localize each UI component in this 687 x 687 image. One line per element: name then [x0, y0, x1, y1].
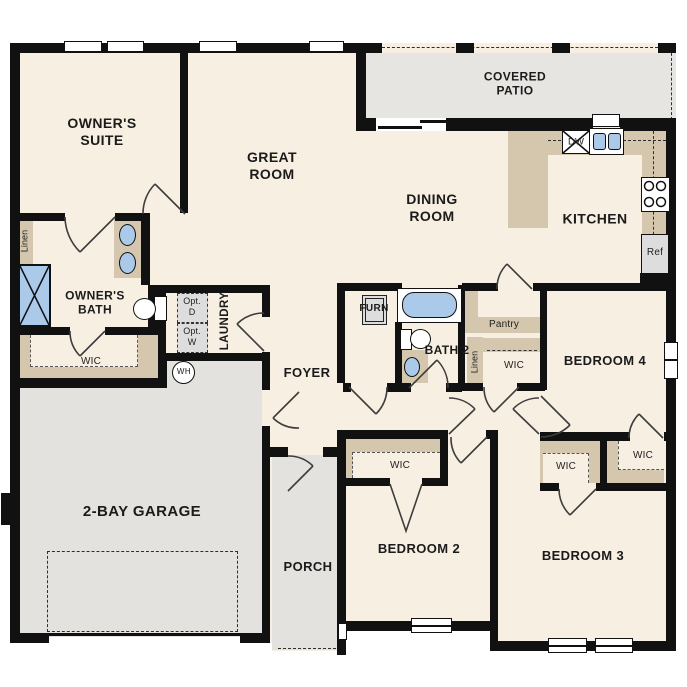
- door-arc: [143, 184, 185, 214]
- burner: [645, 182, 654, 191]
- room-label-dining-room: DINING ROOM: [392, 191, 472, 225]
- door-arc: [629, 414, 663, 438]
- door-arc: [497, 264, 532, 289]
- door-arc: [273, 392, 299, 428]
- room-label-bedroom-2: BEDROOM 2: [378, 541, 460, 557]
- closet-label-hall-wic: WIC: [504, 360, 524, 372]
- room-label-bedroom-3: BEDROOM 3: [542, 548, 624, 564]
- floor-plan: OWNER'S SUITE GREAT ROOM DINING ROOM KIT…: [0, 0, 687, 687]
- door-arc: [70, 331, 105, 356]
- door-arc: [449, 398, 475, 434]
- room-label-garage: 2-BAY GARAGE: [82, 503, 202, 521]
- doors-overlay: [0, 0, 687, 687]
- door-arc: [65, 217, 115, 252]
- room-label-bedroom-4: BEDROOM 4: [564, 353, 646, 369]
- closet-label-linen-hall: Linen: [470, 351, 481, 374]
- room-label-great-room: GREAT ROOM: [232, 149, 312, 183]
- closet-label-bed4-wic: WIC: [633, 450, 653, 462]
- room-label-porch: PORCH: [284, 559, 333, 575]
- fixture-label-opt-dryer: Opt. D: [179, 296, 205, 318]
- door-arc: [513, 398, 539, 434]
- room-label-owners-suite: OWNER'S SUITE: [47, 115, 157, 149]
- closet-label-bed2-wic: WIC: [390, 460, 410, 472]
- burner: [657, 198, 666, 207]
- closet-label-linen-owner: Linen: [20, 230, 31, 253]
- shower-x: [20, 266, 49, 325]
- closet-label-pantry: Pantry: [489, 319, 519, 331]
- fixture-label-furnace: FURN: [359, 303, 388, 315]
- closet-label-bed3-wic: WIC: [556, 461, 576, 473]
- door-arc: [409, 360, 448, 388]
- room-label-kitchen: KITCHEN: [562, 211, 627, 228]
- burner: [645, 198, 654, 207]
- door-arc: [349, 387, 387, 414]
- fixture-label-opt-washer: Opt. W: [179, 326, 205, 348]
- room-label-bath-2: BATH 2: [424, 343, 470, 357]
- room-label-owners-bath: OWNER'S BATH: [55, 289, 135, 318]
- fixture-label-refrigerator: Ref: [647, 247, 663, 259]
- fixture-label-water-heater: WH: [177, 367, 191, 377]
- room-label-laundry: LAUNDRY: [219, 292, 233, 351]
- door-arc: [559, 489, 596, 515]
- burner: [657, 182, 666, 191]
- door-arc: [237, 313, 264, 351]
- door-arc: [451, 437, 487, 463]
- closet-label-owner-wic: WIC: [81, 356, 101, 368]
- room-label-covered-patio: COVERED PATIO: [470, 70, 560, 99]
- bifold-door: [390, 484, 422, 531]
- fixture-label-dishwasher: DW: [568, 136, 584, 147]
- door-arc: [541, 396, 570, 437]
- room-label-foyer: FOYER: [284, 365, 331, 381]
- door-arc: [288, 456, 313, 491]
